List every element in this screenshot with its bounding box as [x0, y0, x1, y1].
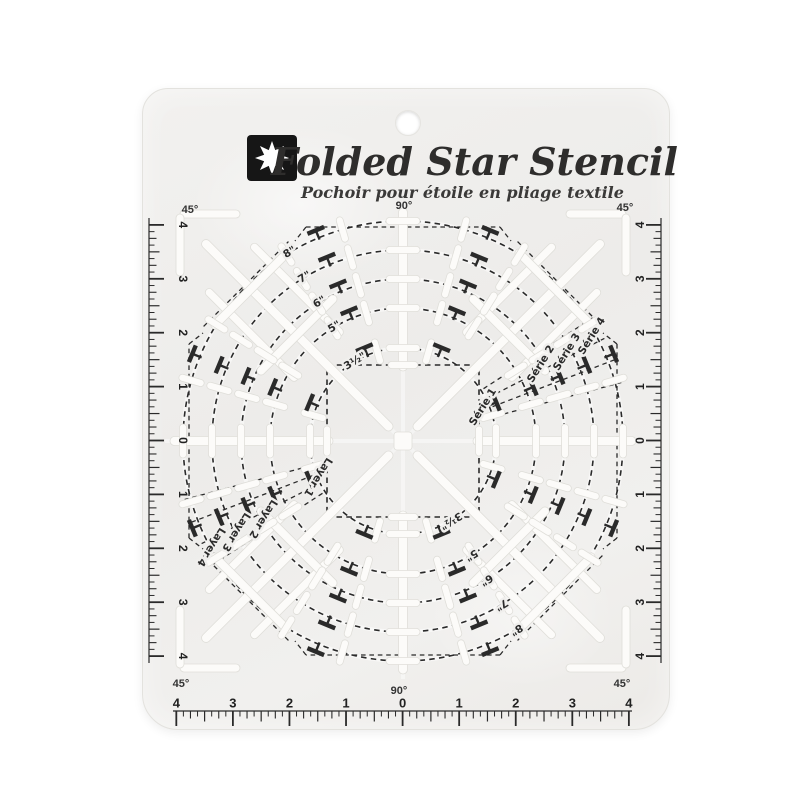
angle-label-top-left: 45° [182, 204, 199, 216]
ruler-number: 3 [229, 696, 236, 711]
series-labels: Série 1Série 2Série 3Série 4 [467, 315, 608, 428]
ruler-number: 3 [176, 275, 190, 282]
angle-label-bottom-right: 45° [614, 678, 631, 690]
angle-label-bottom-center: 90° [391, 685, 408, 697]
ruler-number: 4 [173, 696, 181, 711]
ring-size-label: 3½" [342, 350, 368, 372]
ruler-number: 4 [176, 653, 190, 660]
product-photo: Folded Star Stencil Pochoir pour étoile … [0, 0, 800, 800]
ruler-number: 0 [176, 437, 190, 444]
ruler-number: 1 [342, 696, 349, 711]
ruler-bottom: 432101234 [173, 696, 634, 727]
ruler-number: 4 [176, 222, 190, 229]
ruler-number: 2 [633, 545, 647, 552]
ruler-number: 0 [633, 437, 647, 444]
angle-label-bottom-left: 45° [173, 678, 190, 690]
ruler-number: 3 [633, 599, 647, 606]
ruler-number: 4 [633, 221, 647, 228]
cut-slots [170, 208, 636, 674]
ruler-number: 3 [569, 696, 576, 711]
ruler-number: 1 [176, 491, 190, 498]
ruler-number: 1 [633, 491, 647, 498]
ruler-number: 2 [176, 545, 190, 552]
ruler-number: 1 [633, 383, 647, 390]
angle-label-top-center: 90° [396, 200, 413, 212]
stencil-pattern: 3½"3½"5"5"6"6"7"7"8"8"Série 1Série 2Séri… [0, 0, 800, 800]
ruler-number: 4 [625, 696, 633, 711]
ruler-number: 2 [176, 329, 190, 336]
page: { "product_photo": { "brand_block": { "l… [0, 0, 800, 800]
ruler-right: 432101234 [633, 218, 661, 663]
ruler-number: 3 [633, 275, 647, 282]
angle-label-top-right: 45° [617, 202, 634, 214]
ruler-number: 1 [456, 696, 463, 711]
ruler-number: 2 [512, 696, 519, 711]
ruler-number: 2 [286, 696, 293, 711]
ruler-number: 3 [176, 599, 190, 606]
ruler-number: 4 [633, 652, 647, 659]
ruler-number: 0 [399, 696, 406, 711]
ruler-number: 2 [633, 329, 647, 336]
ruler-number: 1 [176, 383, 190, 390]
ring-size-label: 3½" [438, 509, 464, 531]
